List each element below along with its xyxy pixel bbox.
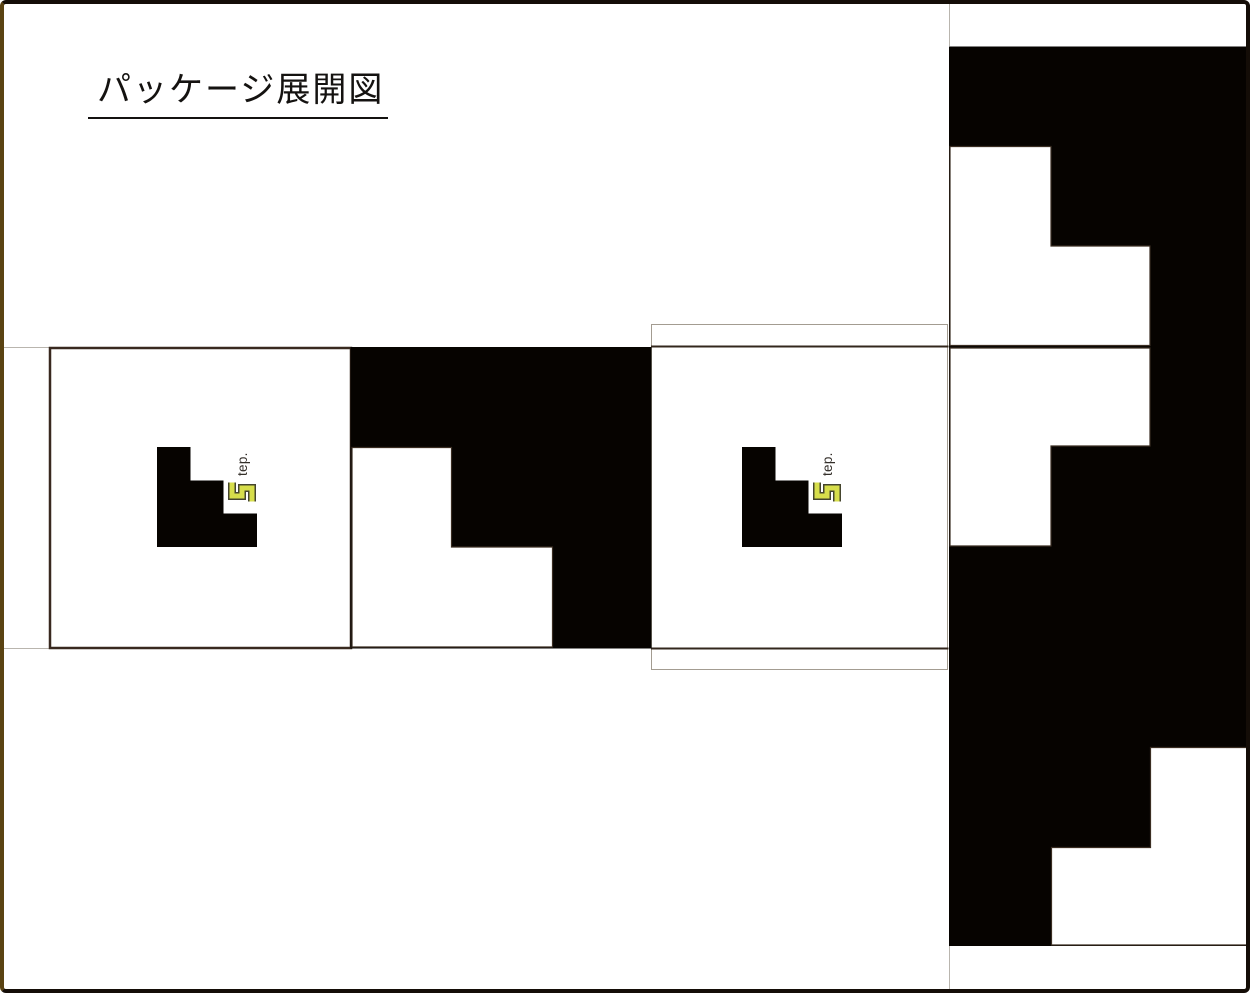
logo-text: tep. (235, 452, 250, 476)
logo-s-icon (813, 479, 841, 505)
page-title: パッケージ展開図 (88, 62, 388, 119)
step-logo: tep. (227, 441, 257, 505)
step-logo-rotated: tep. (812, 441, 842, 505)
logo-s-icon (228, 479, 256, 505)
dieline-drawing (0, 0, 1250, 993)
logo-text: tep. (820, 452, 835, 476)
step-logo: tep. (812, 441, 842, 505)
package-dieline-page: パッケージ展開図 (0, 0, 1250, 993)
step-logo-rotated: tep. (227, 441, 257, 505)
